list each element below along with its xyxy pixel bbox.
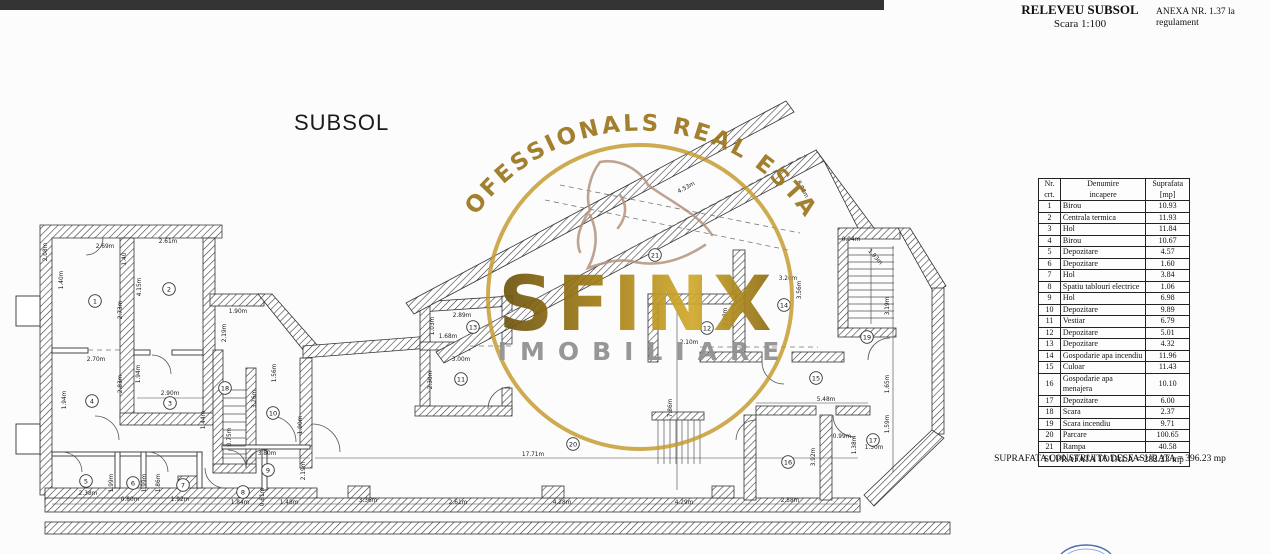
svg-text:5: 5 [84,477,88,485]
table-row: 10Depozitare9.89 [1039,304,1190,316]
dimension-label: 1.38m [852,435,858,454]
table-cell: Scara [1060,407,1145,419]
dimension-label: 0.61m [260,487,266,506]
table-cell: 11 [1039,316,1061,328]
table-cell: Hol [1060,224,1145,236]
table-cell: Scara incendiu [1060,418,1145,430]
room-number: 13 [467,321,480,334]
table-cell: 4.57 [1146,247,1190,259]
table-row: 1Birou10.93 [1039,201,1190,213]
table-row: 21Rampa40.58 [1039,441,1190,453]
svg-text:1: 1 [93,297,97,305]
table-cell: 11.96 [1146,350,1190,362]
dimension-label: 1.90m [298,415,304,434]
room-number: 6 [127,477,140,490]
svg-text:13: 13 [469,323,477,331]
table-row: 2Centrala termica11.93 [1039,212,1190,224]
watermark-subtitle: IMOBILIARE [498,337,793,366]
table-cell: 19 [1039,418,1061,430]
svg-text:2: 2 [167,285,171,293]
scanned-floorplan-page: RELEVEU SUBSOL Scara 1:100 ANEXA NR. 1.3… [0,0,1270,554]
watermark-arc-text: PROFESSIONALS REAL ESTATE [0,0,822,222]
table-row: 5Depozitare4.57 [1039,247,1190,259]
dimension-label: 17.71m [522,452,545,458]
dimension-label: 0.75m [227,427,233,446]
room-number: 18 [219,382,232,395]
room-number: 9 [262,464,275,477]
svg-text:20: 20 [569,440,577,448]
room-number: 10 [267,407,280,420]
room-number: 2 [163,283,176,296]
room-number: 15 [810,372,823,385]
table-cell: 3 [1039,224,1061,236]
table-row: 18Scara2.37 [1039,407,1190,419]
table-header-row: Nr.crt. Denumireincapere Suprafata[mp] [1039,179,1190,201]
svg-text:4: 4 [90,397,94,405]
dimension-label: 0.94m [842,237,861,243]
svg-text:15: 15 [812,374,820,382]
table-cell: 11.84 [1146,224,1190,236]
dimension-label: 2.61m [449,500,468,506]
table-cell: 18 [1039,407,1061,419]
table-cell: 1 [1039,201,1061,213]
table-cell: 4.32 [1146,339,1190,351]
table-row: 13Depozitare4.32 [1039,339,1190,351]
dimension-label: 1.86m [156,473,162,492]
dimension-label: 4.53m [677,181,697,195]
table-row: 4Birou10.67 [1039,235,1190,247]
table-cell: Birou [1060,235,1145,247]
table-cell: Parcare [1060,430,1145,442]
table-cell: Culoar [1060,362,1145,374]
dimension-label: 7.86m [668,398,674,417]
table-cell: 21 [1039,441,1061,453]
table-cell: 10.93 [1146,201,1190,213]
dimension-label: 2.89m [453,313,472,319]
table-cell: 5.01 [1146,327,1190,339]
dimension-label: 3.56m [797,280,803,299]
dimension-label: 2.61m [159,239,178,245]
table-cell: 15 [1039,362,1061,374]
dimension-label: 1.40 [122,252,128,265]
table-cell: Depozitare [1060,327,1145,339]
svg-text:17: 17 [869,436,877,444]
stamp-arc [1058,545,1114,554]
table-cell: Centrala termica [1060,212,1145,224]
table-cell: 20 [1039,430,1061,442]
svg-text:7: 7 [181,481,185,489]
table-cell: 8 [1039,281,1061,293]
table-cell: 6.79 [1146,316,1190,328]
room-number: 11 [455,373,468,386]
table-cell: 4 [1039,235,1061,247]
dimension-label: 3.36m [359,498,378,504]
table-cell: 1.60 [1146,258,1190,270]
table-cell: 10 [1039,304,1061,316]
table-cell: Depozitare [1060,395,1145,407]
room-number: 16 [782,456,795,469]
table-cell: 2 [1039,212,1061,224]
table-cell: 40.58 [1146,441,1190,453]
dimension-label: 2.19m [301,461,307,480]
dimension-label: 1.94m [136,364,142,383]
table-cell: 13 [1039,339,1061,351]
table-cell: Birou [1060,201,1145,213]
table-row: 3Hol11.84 [1039,224,1190,236]
table-cell: Spatiu tablouri electrice [1060,281,1145,293]
dimension-label: 4.28m [553,500,572,506]
room-number: 17 [867,434,880,447]
dimension-label: 2.19m [222,323,228,342]
dimension-label: 0.80m [121,497,140,503]
table-row: 7Hol3.84 [1039,270,1190,282]
table-cell: Depozitare [1060,247,1145,259]
dimension-label: 1.68m [439,334,458,340]
col-header-denumire: Denumireincapere [1060,179,1145,201]
table-cell: 6.98 [1146,293,1190,305]
table-cell: 10.10 [1146,373,1190,395]
dimension-label: 2.58m [781,498,800,504]
table-cell: 100.65 [1146,430,1190,442]
table-row: 19Scara incendiu9.71 [1039,418,1190,430]
dimension-label: 1.99m [142,473,148,492]
room-number: 19 [861,331,874,344]
svg-text:11: 11 [457,375,465,383]
dimension-label: 3.19m [885,296,891,315]
dimension-label: 2.83m [118,374,124,393]
watermark-name: SFINX [498,259,775,348]
svg-text:3: 3 [168,399,172,407]
dimension-label: 3.00m [452,357,471,363]
table-cell: Hol [1060,293,1145,305]
table-cell: 9.89 [1146,304,1190,316]
dimension-label: 2.70m [87,357,106,363]
dimension-label: 2.38m [79,491,98,497]
dimension-label: 2.90m [161,391,180,397]
dimension-label: 1.94m [62,390,68,409]
room-number: 4 [86,395,99,408]
dimension-label: 1.44m [201,410,207,429]
svg-text:8: 8 [241,488,245,496]
dimension-label: 1.48m [280,500,299,506]
dimension-label: 2.30m [428,370,434,389]
table-cell: 17 [1039,395,1061,407]
table-row: 20Parcare100.65 [1039,430,1190,442]
table-row: 12Depozitare5.01 [1039,327,1190,339]
dimension-label: 1.65m [885,374,891,393]
table-cell: Depozitare [1060,304,1145,316]
room-number: 7 [177,479,190,492]
dimension-label: 3.26m [252,389,258,408]
dimension-label: 1.92m [171,497,190,503]
svg-text:9: 9 [266,466,270,474]
table-cell: Depozitare [1060,339,1145,351]
table-row: 11Vestiar6.79 [1039,316,1190,328]
table-cell: 6.00 [1146,395,1190,407]
table-cell: 11.93 [1146,212,1190,224]
table-cell: 5 [1039,247,1061,259]
table-cell: Rampa [1060,441,1145,453]
table-cell: Hol [1060,270,1145,282]
dimension-label: 2.73m [118,300,124,319]
table-row: 14Gospodarie apa incendiu11.96 [1039,350,1190,362]
dimension-label: 3.20m [779,276,798,282]
dimension-label: 2.08m [43,242,49,261]
dimension-label: 3.92m [811,447,817,466]
dimension-label: 3.80m [258,451,277,457]
dimension-label: 1.90m [229,309,248,315]
table-cell: Gospodarie apa incendiu [1060,350,1145,362]
table-cell: Depozitare [1060,258,1145,270]
table-row: 9Hol6.98 [1039,293,1190,305]
table-cell: 2.37 [1146,407,1190,419]
table-cell: 1.06 [1146,281,1190,293]
table-row: 15Culoar11.43 [1039,362,1190,374]
table-cell: 12 [1039,327,1061,339]
svg-text:18: 18 [221,384,229,392]
dimension-label: 1.84m [231,500,250,506]
dimension-label: 4.29m [675,500,694,506]
table-cell: 11.43 [1146,362,1190,374]
room-number: 14 [778,299,791,312]
room-number: 5 [80,475,93,488]
table-row: 6Depozitare1.60 [1039,258,1190,270]
col-header-suprafata: Suprafata[mp] [1146,179,1190,201]
table-cell: 7 [1039,270,1061,282]
room-number: 1 [89,295,102,308]
dimension-label: 2.69m [96,244,115,250]
table-cell: 9 [1039,293,1061,305]
svg-text:6: 6 [131,479,135,487]
col-header-nr: Nr.crt. [1039,179,1061,201]
table-cell: 6 [1039,258,1061,270]
dimension-label: 0.99m [833,434,852,440]
svg-text:19: 19 [863,333,871,341]
dimension-label: 5.48m [817,397,836,403]
room-number: 8 [237,486,250,499]
dimension-label: 1.40m [59,270,65,289]
dimension-label: 1.03m [430,316,436,335]
room-number: 20 [567,438,580,451]
svg-text:10: 10 [269,409,277,417]
areas-table: Nr.crt. Denumireincapere Suprafata[mp] 1… [1038,178,1190,467]
room-number: 3 [164,397,177,410]
dimension-label: 1.59m [885,414,891,433]
table-cell: 14 [1039,350,1061,362]
dimension-label: 1.56m [272,363,278,382]
table-cell: Gospodarie apa menajera [1060,373,1145,395]
table-row: 16Gospodarie apa menajera10.10 [1039,373,1190,395]
table-row: 8Spatiu tablouri electrice1.06 [1039,281,1190,293]
dimension-label: 1.93m [866,248,883,266]
table-cell: 16 [1039,373,1061,395]
table-cell: 10.67 [1146,235,1190,247]
dimension-label: 1.99m [109,473,115,492]
built-area-note: SUPRAFATA CONSTRUITA DESFASURATA = 396.2… [985,454,1235,464]
svg-text:14: 14 [780,301,788,309]
table-cell: 3.84 [1146,270,1190,282]
table-cell: 9.71 [1146,418,1190,430]
dimension-label: 4.15m [137,277,143,296]
table-cell: Vestiar [1060,316,1145,328]
table-row: 17Depozitare6.00 [1039,395,1190,407]
svg-text:16: 16 [784,458,792,466]
